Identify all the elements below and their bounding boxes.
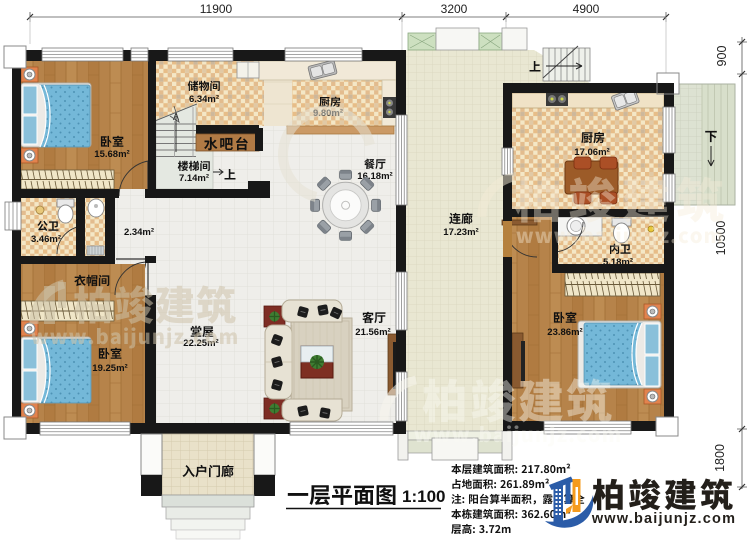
svg-text:23.86m²: 23.86m² — [547, 327, 582, 338]
svg-text:900: 900 — [715, 46, 729, 67]
svg-text:15.68m²: 15.68m² — [94, 149, 129, 160]
svg-text:2.34m²: 2.34m² — [124, 227, 154, 238]
svg-text:17.06m²: 17.06m² — [574, 147, 609, 158]
svg-text:21.56m²: 21.56m² — [355, 327, 390, 338]
svg-text:4900: 4900 — [573, 2, 600, 16]
svg-text:17.23m²: 17.23m² — [443, 227, 478, 238]
svg-text:www.baijunjz.com: www.baijunjz.com — [591, 511, 736, 527]
svg-text:1800: 1800 — [713, 444, 727, 472]
svg-text:19.25m²: 19.25m² — [92, 363, 127, 374]
svg-text:7.14m²: 7.14m² — [179, 173, 209, 184]
svg-text:6.34m²: 6.34m² — [189, 94, 219, 105]
svg-text:11900: 11900 — [200, 2, 233, 16]
svg-text:3.46m²: 3.46m² — [31, 234, 61, 245]
svg-text:1:100: 1:100 — [402, 487, 445, 506]
svg-text:3200: 3200 — [441, 2, 468, 16]
